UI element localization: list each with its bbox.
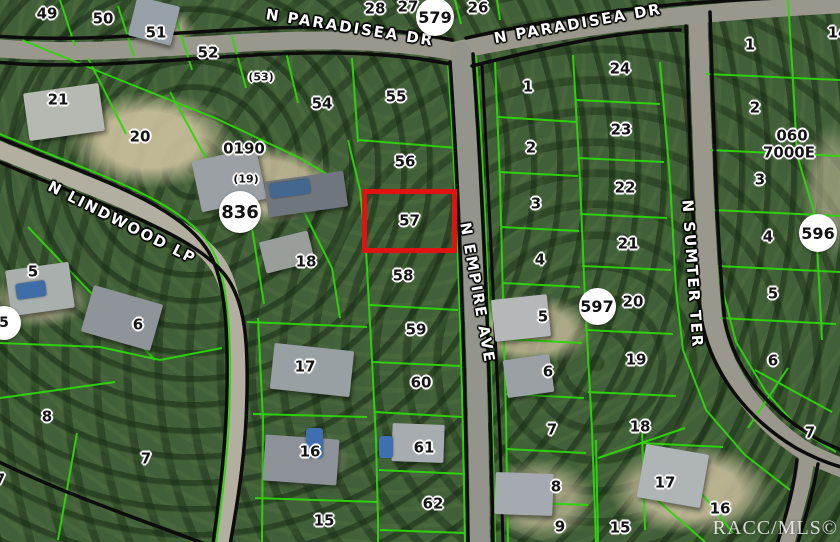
lot-label-49: 49 <box>37 7 58 22</box>
lot-label-26: 26 <box>468 1 489 16</box>
lot-label-9: 9 <box>555 520 565 535</box>
lot-label-20: 20 <box>623 295 644 310</box>
lot-label-24: 24 <box>610 62 631 77</box>
lot-label-19: 19 <box>626 353 647 368</box>
lot-label-7000E: 7000E <box>763 146 815 161</box>
lot-label-14: 14 <box>828 26 840 41</box>
lot-label-60: 60 <box>411 376 432 391</box>
lot-label-8: 8 <box>42 410 52 425</box>
highlighted-parcel-57: 57 <box>362 189 457 253</box>
badge-597: 597 <box>579 288 616 325</box>
lot-label-28: 28 <box>365 2 386 17</box>
lot-label-2: 2 <box>526 141 536 156</box>
lot-label-5: 5 <box>768 287 778 302</box>
lot-label-61: 61 <box>414 441 435 456</box>
lot-label-2: 2 <box>750 101 760 116</box>
lot-label-1: 1 <box>523 80 533 95</box>
lot-label-62: 62 <box>423 497 444 512</box>
badge-596: 596 <box>799 214 837 252</box>
lot-label-20: 20 <box>130 130 151 145</box>
lot-label-3: 3 <box>755 173 765 188</box>
lot-label-6: 6 <box>133 318 143 333</box>
lot-label-060: 060 <box>776 129 807 144</box>
lot-label-16: 16 <box>300 445 321 460</box>
lot-label-50: 50 <box>93 12 114 27</box>
lot-label-4: 4 <box>763 230 773 245</box>
lot-label-8: 8 <box>551 480 561 495</box>
lot-label-54: 54 <box>312 97 333 112</box>
lot-label-18: 18 <box>296 255 317 270</box>
lot-label-16: 16 <box>710 502 731 517</box>
lot-label-21: 21 <box>618 237 639 252</box>
lot-label-17: 17 <box>655 476 676 491</box>
lot-label-1: 1 <box>745 38 755 53</box>
lot-label-7: 7 <box>547 423 557 438</box>
lot-label-15: 15 <box>314 514 335 529</box>
pool <box>379 436 393 458</box>
lot-label-3: 3 <box>531 197 541 212</box>
lot-label-18: 18 <box>630 420 651 435</box>
lot-label-52: 52 <box>198 46 219 61</box>
aerial-parcel-map: 57 49505152(53)545521200190(19)185687756… <box>0 0 840 542</box>
lot-label-7: 7 <box>141 452 151 467</box>
lot-label-15: 15 <box>610 521 631 536</box>
lot-label-51: 51 <box>146 26 167 41</box>
lot-label-55: 55 <box>386 90 407 105</box>
lot-label-5: 5 <box>28 265 38 280</box>
lot-label-7: 7 <box>805 426 815 441</box>
lot-label-6: 6 <box>543 365 553 380</box>
badge-836: 836 <box>219 191 261 233</box>
lot-label-6: 6 <box>768 354 778 369</box>
lot-label-0190: 0190 <box>223 142 265 157</box>
lot-label-17: 17 <box>295 360 316 375</box>
lot-label-7: 7 <box>0 473 5 488</box>
lot-label-58: 58 <box>393 269 414 284</box>
lot-label-21: 21 <box>48 93 69 108</box>
mls-watermark: RACC/MLS© <box>713 517 838 540</box>
lot-label-4: 4 <box>535 253 545 268</box>
lot-label-27: 27 <box>398 0 419 15</box>
lot-label-22: 22 <box>615 181 636 196</box>
lot-label-(53): (53) <box>248 72 273 83</box>
lot-label-(19): (19) <box>233 174 258 185</box>
house-roof <box>494 472 553 516</box>
lot-label-56: 56 <box>395 155 416 170</box>
lot-label-59: 59 <box>406 323 427 338</box>
lot-label-57: 57 <box>399 214 420 229</box>
lot-label-5: 5 <box>538 310 548 325</box>
lot-label-23: 23 <box>611 123 632 138</box>
